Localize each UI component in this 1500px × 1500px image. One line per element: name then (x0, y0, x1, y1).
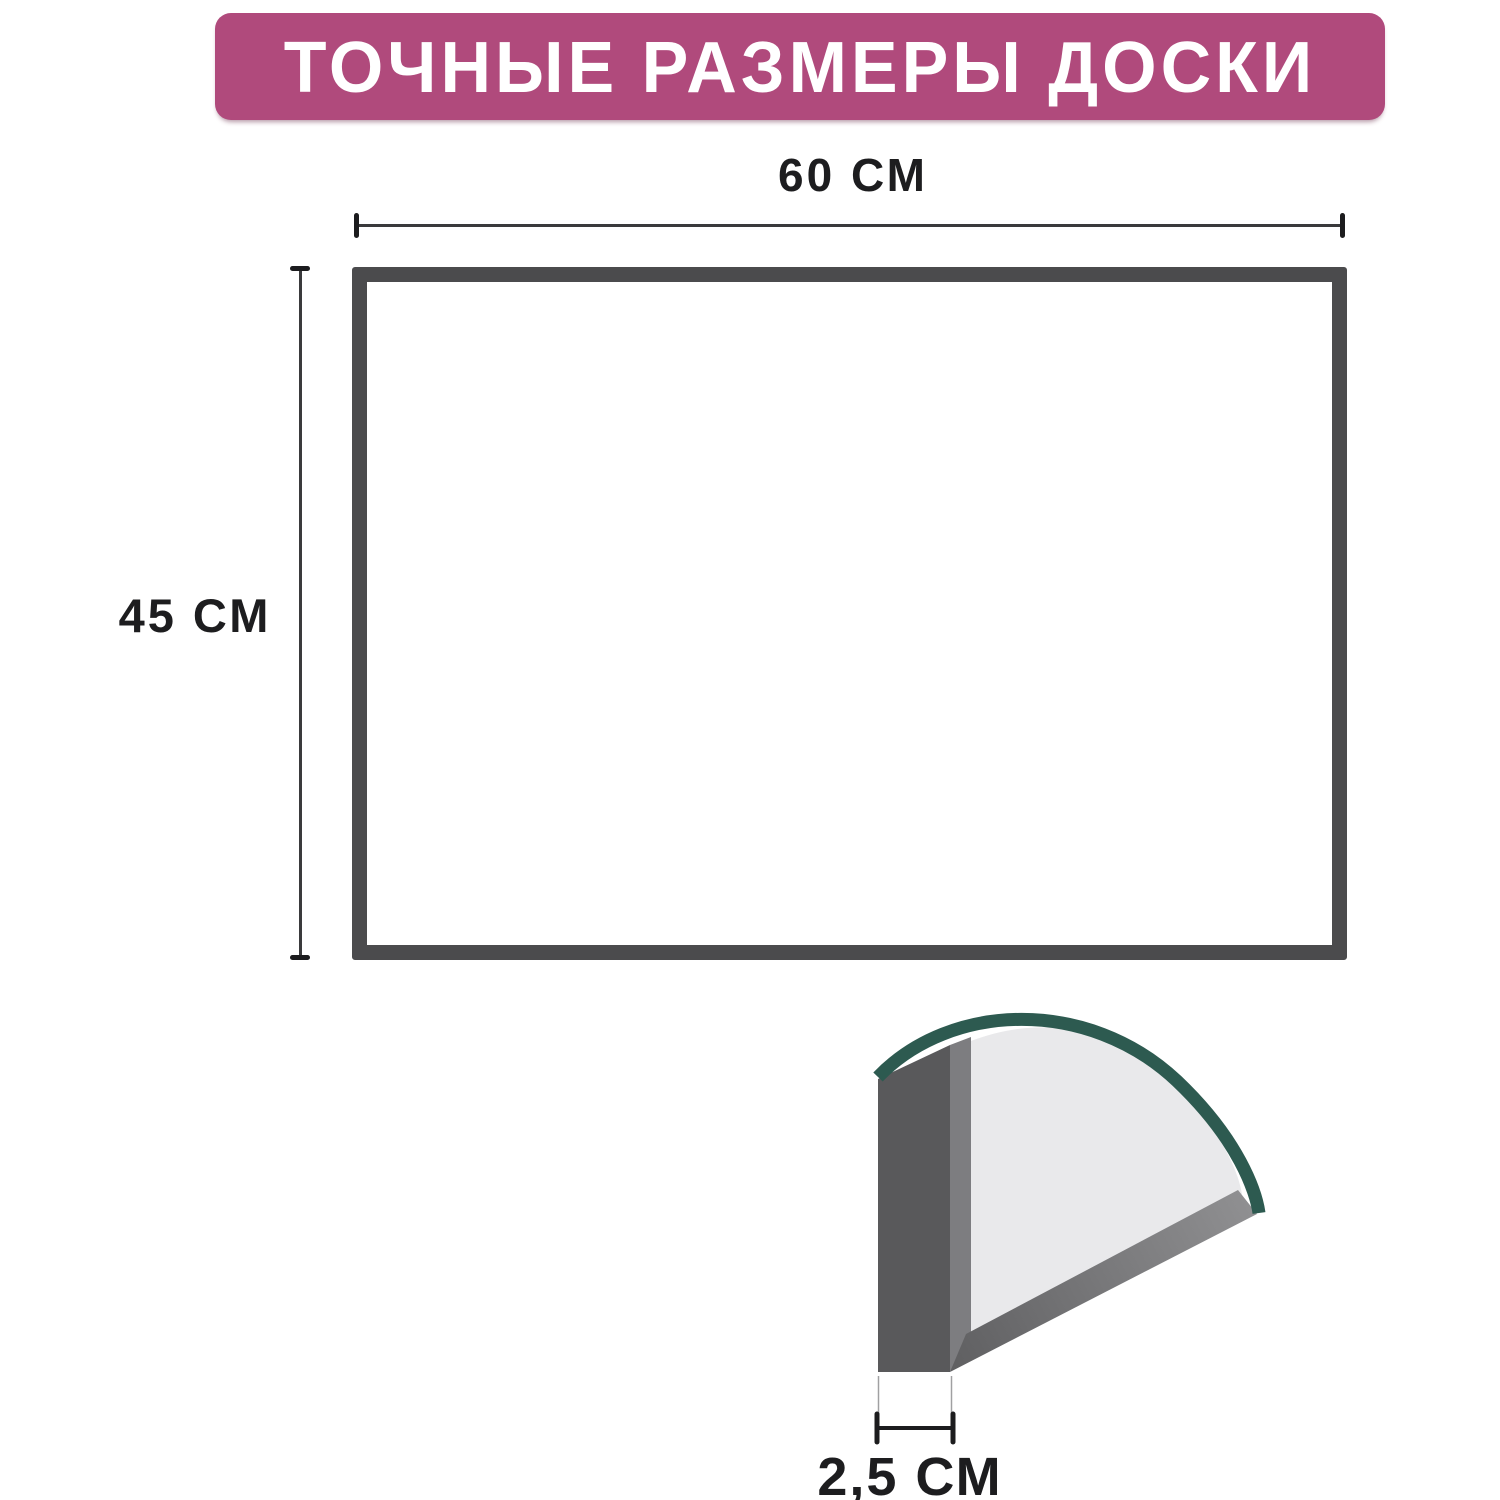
frame-profile-side (950, 1037, 971, 1372)
width-dimension-tick-right (1340, 213, 1345, 238)
product-dimension-infographic: ТОЧНЫЕ РАЗМЕРЫ ДОСКИ 60 СМ 45 СМ (0, 0, 1500, 1500)
height-dimension-line (299, 268, 302, 958)
width-dimension-label: 60 СМ (703, 148, 1003, 202)
thickness-dimension-label: 2,5 СМ (760, 1446, 1060, 1500)
frame-profile-front (878, 1045, 950, 1372)
board-front-view (352, 267, 1347, 960)
width-dimension-line (357, 224, 1343, 227)
page-title: ТОЧНЫЕ РАЗМЕРЫ ДОСКИ (284, 25, 1316, 108)
height-dimension-tick-top (290, 266, 310, 271)
height-dimension-tick-bottom (290, 955, 310, 960)
board-edge-cross-section (850, 1000, 1290, 1500)
title-banner: ТОЧНЫЕ РАЗМЕРЫ ДОСКИ (215, 13, 1385, 120)
width-dimension-tick-left (354, 213, 359, 238)
height-dimension-label: 45 СМ (65, 588, 325, 643)
